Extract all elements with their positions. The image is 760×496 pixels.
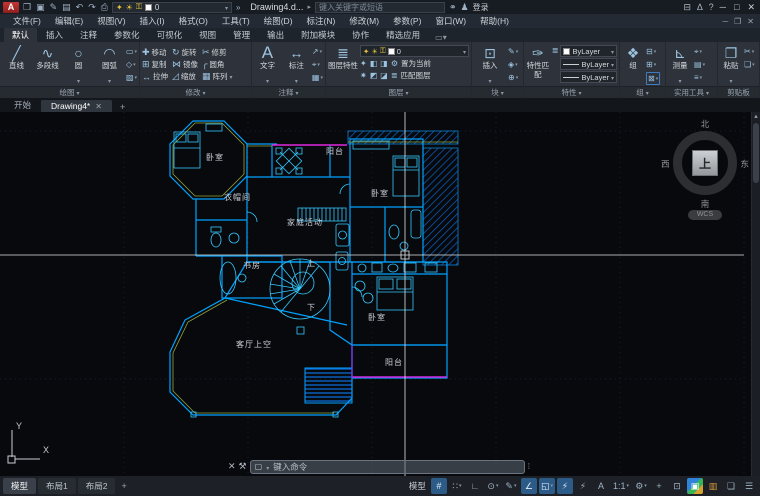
workspace-gear[interactable]: ⚙▾ [633, 478, 649, 494]
model-space-button[interactable]: 模型 [406, 480, 429, 492]
app-store-icon[interactable]: ⊟ [684, 2, 692, 13]
layout-tabs: 模型布局1布局2 [3, 478, 115, 494]
flyout-arrow-icon[interactable]: ▸ [307, 3, 311, 11]
panel-title-groups[interactable]: 组 [620, 86, 665, 98]
customize-menu[interactable]: ☰ [741, 478, 757, 494]
svg-text:X: X [43, 445, 49, 455]
save-as-icon[interactable]: ✎ [50, 2, 58, 12]
layer-properties-icon: ≣ [337, 45, 349, 61]
layer-properties-button[interactable]: ≣ 图层特性 [328, 44, 358, 70]
viewcube-west[interactable]: 西 [661, 158, 670, 170]
layer-off-icon[interactable]: ✦ [360, 59, 367, 68]
viewcube-east[interactable]: 东 [740, 158, 749, 170]
menu-item-2[interactable]: 视图(V) [90, 15, 132, 27]
unlock-icon: ⚿ [380, 46, 386, 56]
chevron-down-icon [752, 59, 755, 70]
stretch-button[interactable]: ↔拉伸 [142, 71, 168, 82]
command-bar: ✕ ⚒ ▢ 键入命令 ⁞ [228, 459, 530, 474]
tab-drawing4[interactable]: Drawing4* ✕ [41, 100, 112, 112]
room-label-2: 卧室 [371, 188, 389, 199]
annotation-autoscale-toggle[interactable]: ⚡ [575, 478, 591, 494]
ribbon-tab-bar: 默认插入注释参数化可视化视图管理输出附加模块协作精选应用▭▾ [0, 28, 760, 42]
title-bar: A ❒▣✎▤↶↷⎙ ✦ ☀ ⚿ 0 » Drawing4.d... ▸ 键入关键… [0, 0, 760, 14]
viewcube-north[interactable]: 北 [664, 118, 746, 130]
menu-item-5[interactable]: 工具(T) [215, 15, 257, 27]
open-icon[interactable]: ❒ [23, 2, 31, 12]
leader-icon[interactable]: ↗ [312, 46, 323, 57]
room-label-4: 家庭活动 [287, 217, 323, 228]
command-customize-icon[interactable]: ⚒ [239, 461, 247, 472]
save-icon[interactable]: ▣ [36, 2, 45, 12]
chevron-down-icon [752, 46, 755, 57]
stretch-icon: ↔ [142, 72, 151, 82]
document-title: Drawing4.d... [250, 2, 303, 12]
layer-thaw-icon[interactable]: ◪ [380, 71, 388, 80]
panel-title-annotation[interactable]: 注释 [252, 86, 325, 98]
menu-item-11[interactable]: 帮助(H) [473, 15, 516, 27]
doc-close-button[interactable]: ✕ [747, 17, 754, 26]
snap-toggle[interactable]: ∷▾ [449, 478, 465, 494]
layer-unisolate-icon[interactable]: ◩ [370, 71, 378, 80]
room-label-8: 客厅上空 [236, 339, 272, 350]
room-label-3: 衣帽间 [224, 192, 251, 203]
file-tab-bar: 开始 Drawing4* ✕ + [0, 98, 760, 112]
menu-item-8[interactable]: 修改(M) [342, 15, 386, 27]
line-icon: ╱ [12, 45, 20, 61]
new-drawing-tab-button[interactable]: + [116, 102, 129, 112]
user-icon[interactable]: ♟ [461, 2, 469, 13]
chevron-down-icon [654, 59, 657, 70]
insert-block-icon: ⊡ [484, 45, 496, 61]
quick-calc-icon[interactable]: ▤ [694, 59, 705, 70]
trim-button[interactable]: ✂修剪 [202, 47, 233, 58]
scale-icon: ◿ [172, 71, 179, 82]
chevron-down-icon [463, 47, 466, 56]
linetype-dropdown[interactable]: ByLayer [560, 71, 617, 83]
command-recent-icon[interactable]: ▢ [255, 462, 263, 471]
copy-icon: ⊞ [142, 59, 150, 70]
panel-title-layers[interactable]: 图层 [326, 86, 471, 98]
hatch-icon[interactable]: ▨ [126, 72, 137, 83]
dimension-button[interactable]: ↔ 标注 [283, 44, 310, 88]
status-bar: 模型布局1布局2 + 模型 #∷▾∟⊙▾✎▾∠◱▾⚡⚡A1:1▾⚙▾+⊡▣▥❏☰ [0, 476, 760, 496]
mirror-button[interactable]: ⋈镜像 [172, 59, 198, 70]
maximize-button[interactable]: □ [732, 2, 741, 12]
paste-icon: ❐ [725, 45, 738, 61]
layout-tab-布局2[interactable]: 布局2 [78, 478, 116, 494]
chevron-down-icon [516, 72, 519, 83]
command-grip-icon[interactable]: ⁞ [528, 462, 530, 471]
room-label-1: 阳台 [326, 146, 344, 157]
sun-icon: ☀ [371, 47, 378, 56]
chevron-down-icon [133, 59, 136, 70]
rectangle-icon[interactable]: ▭ [126, 46, 137, 57]
menu-item-9[interactable]: 参数(P) [386, 15, 428, 27]
room-label-9: 卧室 [368, 312, 386, 323]
annotation-monitor[interactable]: + [651, 478, 667, 494]
menu-item-10[interactable]: 窗口(W) [428, 15, 473, 27]
close-tab-icon[interactable]: ✕ [95, 102, 102, 111]
room-label-0: 卧室 [206, 152, 224, 163]
new-layout-button[interactable]: + [117, 481, 130, 491]
search-icon[interactable]: ⚭ [449, 2, 457, 13]
block-attr-icon[interactable]: ⊕ [508, 72, 518, 83]
text-icon: A [262, 45, 273, 61]
layer-lock-icon[interactable]: ⚙ [391, 59, 398, 68]
table-icon[interactable]: ▦ [312, 72, 323, 83]
panel-title-draw[interactable]: 绘图 [0, 86, 139, 98]
layer-dropdown[interactable]: ✦ ☀ ⚿ 0 [360, 45, 469, 57]
arc-icon: ◠ [103, 45, 115, 61]
measure-icon: ⊾ [674, 45, 686, 61]
panel-draw: ╱ 直线 ∿ 多段线 ○ 圆 ◠ 圆弧 ▭◇▨ 绘图 [0, 42, 140, 98]
move-button[interactable]: ✚移动 [142, 47, 168, 58]
polar-toggle[interactable]: ⊙▾ [485, 478, 501, 494]
ribbon-tab-视图[interactable]: 视图 [191, 28, 224, 42]
ribbon-tab-管理[interactable]: 管理 [225, 28, 258, 42]
group-edit-icon[interactable]: ⊞ [646, 59, 660, 70]
properties-list-icon[interactable]: ≣ [552, 46, 559, 55]
viewcube[interactable]: 北 西 东 南 上 WCS [664, 118, 746, 218]
linetype-icon [563, 77, 579, 78]
chevron-down-icon [516, 46, 519, 57]
annotation-visibility-toggle[interactable]: ⚡ [557, 478, 573, 494]
bulb-icon: ✦ [116, 3, 123, 12]
panel-annotation: A 文字 ↔ 标注 ↗⌖▦ 注释 [252, 42, 326, 98]
measure-button[interactable]: ⊾ 测量 [668, 44, 692, 88]
ribbon-tab-参数化[interactable]: 参数化 [106, 28, 148, 42]
room-label-10: 阳台 [385, 357, 403, 368]
tab-start[interactable]: 开始 [4, 98, 41, 112]
layer-isolate-icon[interactable]: ◧ [370, 59, 378, 68]
set-current-button[interactable]: 置为当前 [401, 58, 431, 69]
isolate-objects[interactable]: ⊡ [669, 478, 685, 494]
hardware-accel[interactable]: ▥ [705, 478, 721, 494]
room-label-5: 书房 [243, 260, 261, 271]
menu-item-1[interactable]: 编辑(E) [48, 15, 90, 27]
plot-icon[interactable]: ▤ [62, 2, 71, 12]
redo-icon[interactable]: ↷ [88, 2, 96, 12]
match-layer-button[interactable]: 匹配图层 [401, 70, 431, 81]
undo-icon[interactable]: ↶ [76, 2, 84, 12]
panel-title-block[interactable]: 块 [472, 86, 523, 98]
circle-button[interactable]: ○ 圆 [64, 44, 93, 88]
chevron-down-icon [656, 73, 659, 84]
quick-access-toolbar: ❒▣✎▤↶↷⎙ [23, 2, 108, 12]
viewcube-top-face[interactable]: 上 [692, 150, 718, 176]
help-icon[interactable]: ? [709, 2, 714, 12]
insert-block-button[interactable]: ⊡ 插入 [474, 44, 506, 88]
trim-icon: ✂ [202, 47, 210, 58]
panel-title-clipboard[interactable]: 剪贴板 [718, 86, 759, 98]
fillet-icon: ╭ [202, 59, 207, 70]
annotation-scale-icon[interactable]: A [593, 478, 609, 494]
layout-tab-模型[interactable]: 模型 [3, 478, 36, 494]
panel-groups: ❖ 组 ⊟⊞⊠ 组 [620, 42, 666, 98]
chevron-down-icon [703, 59, 706, 70]
block-create-icon[interactable]: ◈ [508, 59, 518, 70]
panel-modify: ✚移动 ↻旋转 ✂修剪 ⊞复制 ⋈镜像 ╭圆角 ↔拉伸 ◿缩放 ▦阵列 修改 [140, 42, 252, 98]
dimension-icon: ↔ [289, 45, 303, 61]
panel-title-modify[interactable]: 修改 [140, 86, 251, 98]
layout-tab-布局1[interactable]: 布局1 [38, 478, 76, 494]
scroll-up-icon[interactable]: ▲ [752, 112, 760, 122]
id-point-icon[interactable]: ⌖ [694, 46, 705, 57]
polyline-icon: ∿ [42, 45, 54, 61]
chevron-down-icon [135, 72, 138, 83]
mirror-icon: ⋈ [172, 59, 181, 70]
chevron-down-icon [320, 46, 323, 57]
close-button[interactable]: ✕ [745, 2, 757, 13]
chevron-down-icon[interactable] [266, 462, 269, 472]
command-input[interactable]: ▢ 键入命令 [250, 460, 525, 474]
otrack-toggle[interactable]: ∠ [521, 478, 537, 494]
layer-freeze-icon[interactable]: ◨ [380, 59, 388, 68]
panel-title-properties[interactable]: 特性 [524, 86, 619, 98]
vertical-scrollbar[interactable]: ▲ [751, 112, 760, 476]
copy-button[interactable]: ⊞复制 [142, 59, 168, 70]
chevron-down-icon [700, 46, 703, 57]
qat-layer-combo[interactable]: ✦ ☀ ⚿ 0 [112, 2, 232, 13]
grid-toggle[interactable]: # [431, 478, 447, 494]
rotate-icon: ↻ [172, 47, 180, 58]
command-placeholder: 键入命令 [273, 461, 307, 473]
ribbon-tab-默认[interactable]: 默认 [4, 28, 37, 42]
room-label-6: 上 [307, 258, 316, 269]
lineweight-dropdown[interactable]: ByLayer [560, 58, 617, 70]
qat-overflow-icon[interactable]: » [236, 3, 240, 12]
layer-combo-value: 0 [155, 3, 159, 12]
panel-title-utilities[interactable]: 实用工具 [666, 86, 717, 98]
ortho-toggle[interactable]: ∟ [467, 478, 483, 494]
scale-button[interactable]: ◿缩放 [172, 71, 198, 82]
chevron-down-icon[interactable] [225, 3, 228, 12]
chevron-down-icon [654, 46, 657, 57]
drawing-canvas[interactable]: Y X 卧室阳台卧室衣帽间家庭活动书房上下客厅上空卧室阳台 北 西 东 南 上 … [0, 112, 760, 476]
menu-item-4[interactable]: 格式(O) [172, 15, 215, 27]
layer-color-swatch [388, 48, 395, 55]
chevron-down-icon [320, 72, 323, 83]
group-icon: ❖ [627, 45, 640, 61]
ribbon-tab-附加模块[interactable]: 附加模块 [293, 28, 343, 42]
chevron-down-icon [135, 46, 138, 57]
panel-clipboard: ❐ 粘贴 ✂❏ 剪贴板 [718, 42, 760, 98]
titlebar-right-icons: ⊟∆? [684, 2, 714, 13]
bylayer-color-swatch [563, 48, 570, 55]
minimize-button[interactable]: ─ [718, 2, 728, 12]
viewcube-south[interactable]: 南 [664, 198, 746, 210]
svg-text:Y: Y [16, 421, 22, 431]
copy-clip-icon[interactable]: ❏ [744, 59, 755, 70]
circle-icon: ○ [74, 45, 82, 61]
doc-restore-button[interactable]: ❐ [734, 17, 741, 26]
panel-properties: ✑ 特性匹配 ≣ ByLayer ByLayer ByLayer 特性 [524, 42, 620, 98]
lineweight-icon [563, 64, 579, 65]
color-dropdown[interactable]: ByLayer [560, 45, 617, 57]
array-icon: ▦ [202, 71, 211, 82]
group-button[interactable]: ❖ 组 [622, 44, 644, 70]
bulb-icon: ✦ [363, 47, 369, 56]
line-button[interactable]: ╱ 直线 [2, 44, 31, 70]
print-icon[interactable]: ⎙ [101, 2, 108, 12]
move-icon: ✚ [142, 47, 150, 58]
panel-layers: ≣ 图层特性 ✦ ☀ ⚿ 0 ✦◧◨⚙ 置为当前 ✷◩◪≣ 匹配图层 [326, 42, 472, 98]
doc-minimize-button[interactable]: ─ [722, 17, 728, 26]
ungroup-icon[interactable]: ⊟ [646, 46, 660, 57]
ucs-icon [8, 430, 40, 463]
app-logo[interactable]: A [3, 2, 19, 13]
ribbon-tab-精选应用[interactable]: 精选应用 [378, 28, 428, 42]
ribbon-tab-协作[interactable]: 协作 [344, 28, 377, 42]
menu-bar: 文件(F)编辑(E)视图(V)插入(I)格式(O)工具(T)绘图(D)标注(N)… [0, 14, 760, 28]
text-button[interactable]: A 文字 [254, 44, 281, 88]
ellipse-icon[interactable]: ◇ [126, 59, 137, 70]
autodesk-icon[interactable]: ∆ [697, 2, 703, 12]
ribbon: ╱ 直线 ∿ 多段线 ○ 圆 ◠ 圆弧 ▭◇▨ 绘图 ✚移动 ↻旋转 ✂修剪 ⊞… [0, 42, 760, 98]
chevron-down-icon [700, 72, 703, 83]
room-label-7: 下 [307, 302, 316, 313]
ribbon-tab-可视化[interactable]: 可视化 [149, 28, 191, 42]
menu-item-7[interactable]: 标注(N) [300, 15, 343, 27]
paste-button[interactable]: ❐ 粘贴 [720, 44, 742, 88]
rotate-button[interactable]: ↻旋转 [172, 47, 198, 58]
block-edit-icon[interactable]: ✎ [508, 46, 518, 57]
floor-plan: Y X [0, 112, 760, 476]
panel-utilities: ⊾ 测量 ⌖▤≡ 实用工具 [666, 42, 718, 98]
panel-block: ⊡ 插入 ✎◈⊕ 块 [472, 42, 524, 98]
clean-screen[interactable]: ❏ [723, 478, 739, 494]
status-toggles: #∷▾∟⊙▾✎▾∠◱▾⚡⚡A1:1▾⚙▾+⊡▣▥❏☰ [431, 478, 757, 494]
fillet-button[interactable]: ╭圆角 [202, 59, 233, 70]
menu-item-6[interactable]: 绘图(D) [257, 15, 300, 27]
menu-item-3[interactable]: 插入(I) [133, 15, 172, 27]
match-properties-icon: ✑ [532, 45, 544, 61]
layer-color-swatch [145, 4, 152, 11]
unlock-icon: ⚿ [136, 2, 142, 12]
polyline-button[interactable]: ∿ 多段线 [33, 44, 62, 70]
ribbon-display-toggle[interactable]: ▭▾ [435, 33, 447, 42]
quick-select-icon[interactable]: ≡ [694, 72, 705, 83]
ribbon-tab-输出[interactable]: 输出 [259, 28, 292, 42]
menu-items: 文件(F)编辑(E)视图(V)插入(I)格式(O)工具(T)绘图(D)标注(N)… [6, 15, 516, 27]
graphics-performance[interactable]: ▣ [687, 478, 703, 494]
annotation-scale-value[interactable]: 1:1▾ [611, 478, 631, 494]
cut-icon[interactable]: ✂ [744, 46, 755, 57]
scrollbar-thumb[interactable] [753, 123, 759, 183]
signin-link[interactable]: 登录 [473, 2, 489, 13]
menu-item-0[interactable]: 文件(F) [6, 15, 48, 27]
ribbon-tab-插入[interactable]: 插入 [38, 28, 71, 42]
arc-button[interactable]: ◠ 圆弧 [95, 44, 124, 88]
array-button[interactable]: ▦阵列 [202, 71, 233, 82]
osnap-toggle[interactable]: ◱▾ [539, 478, 555, 494]
isodraft-toggle[interactable]: ✎▾ [503, 478, 519, 494]
layer-unlock-icon[interactable]: ≣ [391, 71, 398, 80]
wcs-button[interactable]: WCS [688, 210, 722, 220]
chevron-down-icon [515, 59, 518, 70]
ribbon-tab-注释[interactable]: 注释 [72, 28, 105, 42]
dim-style-icon[interactable]: ⌖ [312, 59, 323, 70]
group-select-icon[interactable]: ⊠ [646, 72, 660, 85]
command-close-icon[interactable]: ✕ [228, 461, 236, 472]
match-properties-button[interactable]: ✑ 特性匹配 [526, 44, 550, 79]
chevron-down-icon [317, 59, 320, 70]
sun-icon: ☀ [126, 3, 133, 12]
layer-on-icon[interactable]: ✷ [360, 71, 367, 80]
search-input[interactable]: 键入关键字或短语 [315, 2, 445, 13]
crosshair-cursor [0, 112, 744, 476]
